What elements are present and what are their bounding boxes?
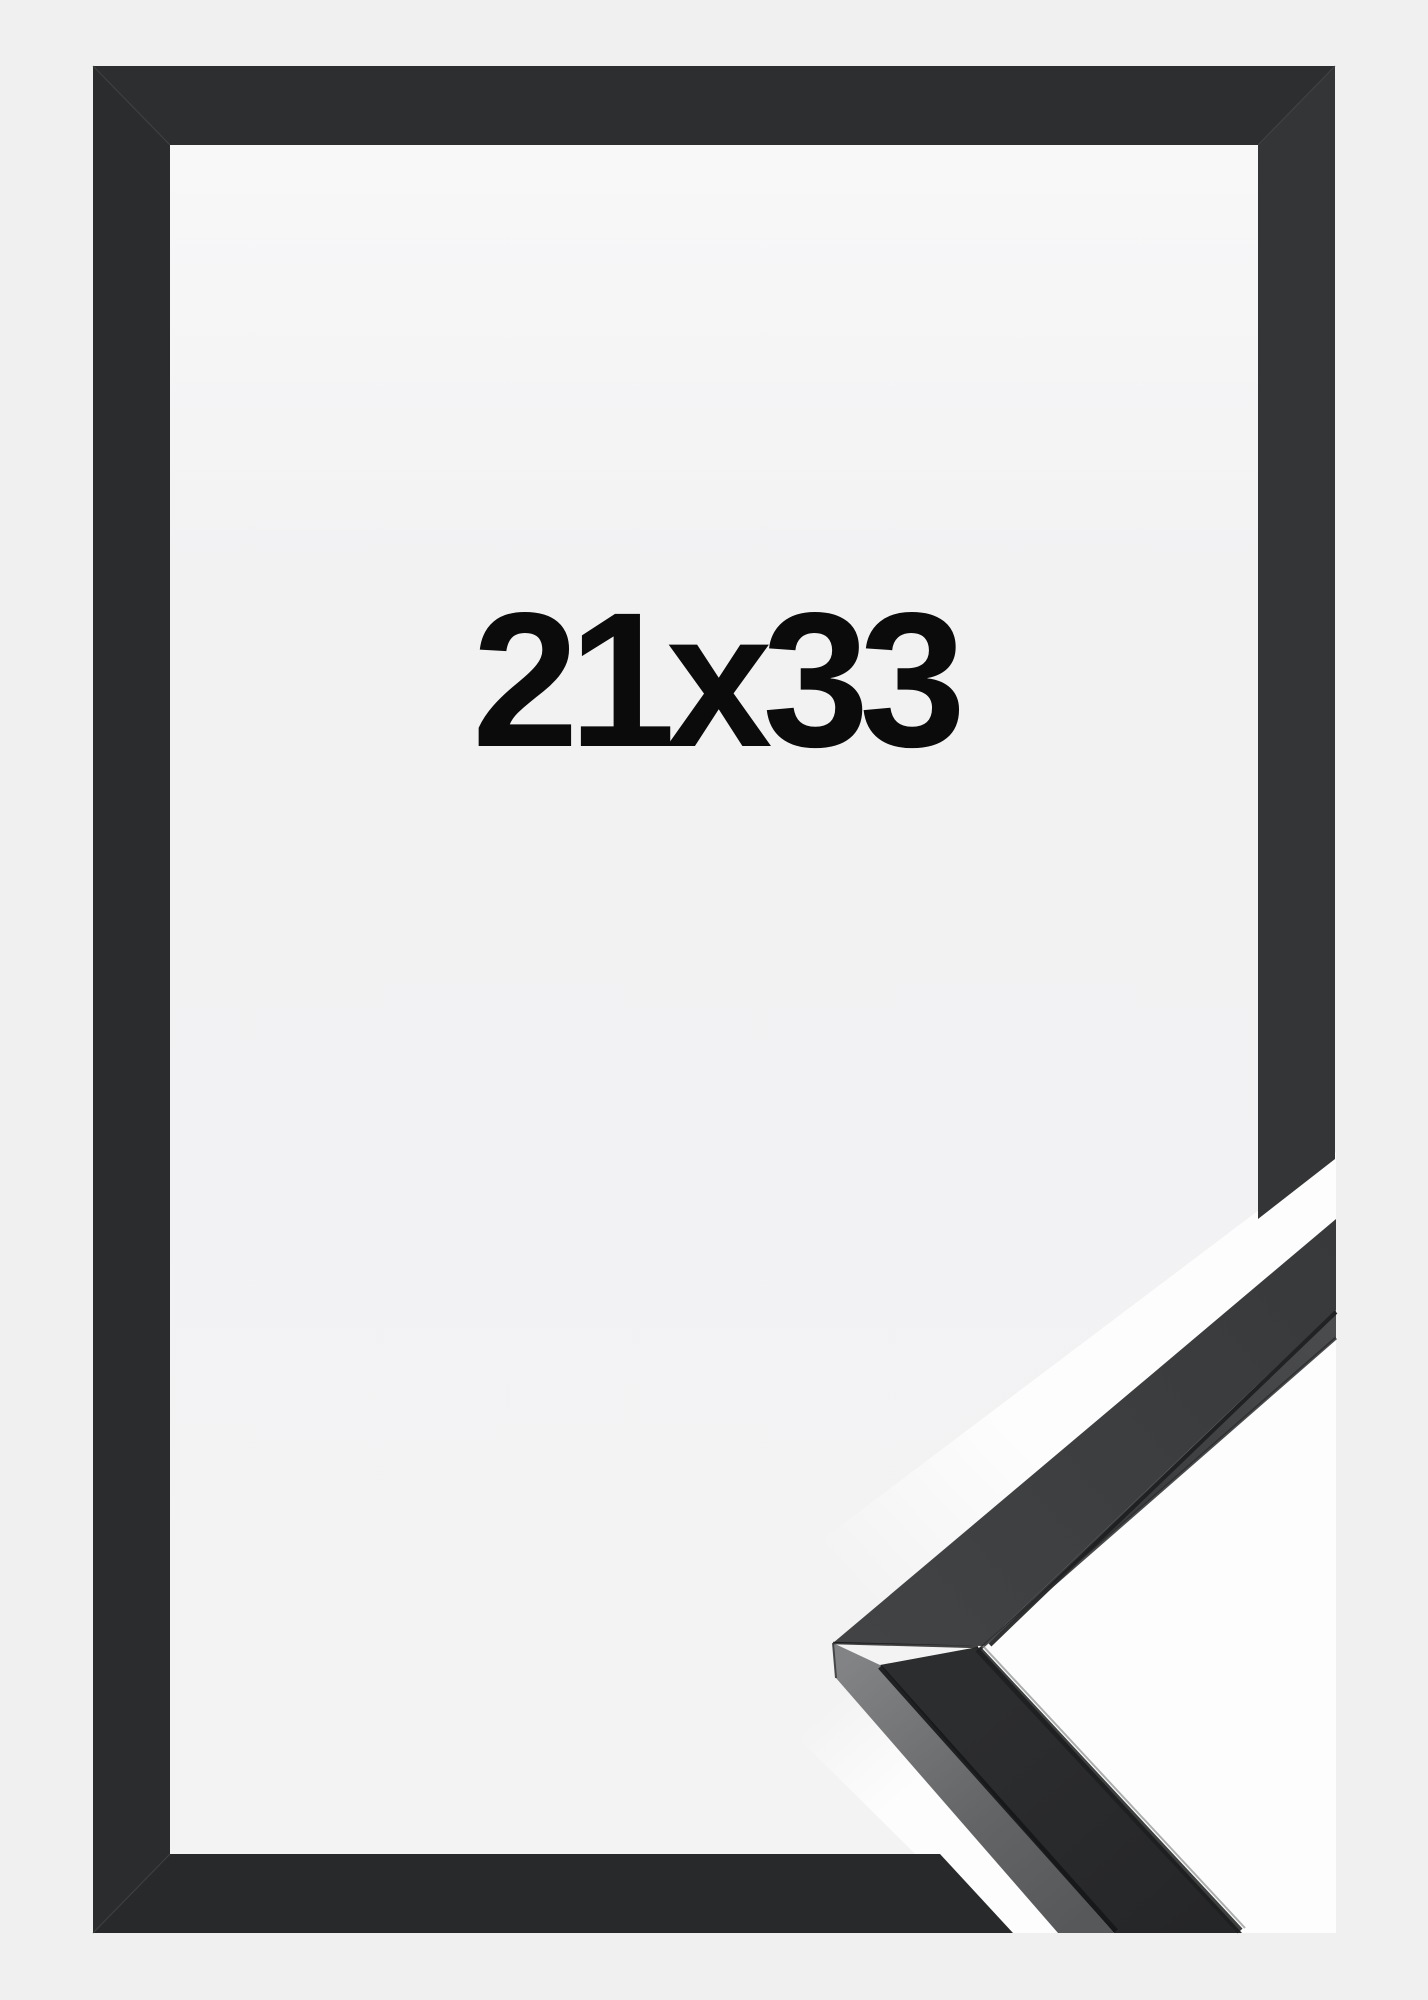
size-label: 21x33 bbox=[0, 584, 1428, 776]
frame-bar-left bbox=[93, 66, 170, 1933]
frame-bar-bottom bbox=[93, 1854, 1013, 1933]
frame-illustration bbox=[0, 0, 1428, 2000]
frame-bar-top bbox=[93, 66, 1335, 145]
product-image: 21x33 bbox=[0, 0, 1428, 2000]
